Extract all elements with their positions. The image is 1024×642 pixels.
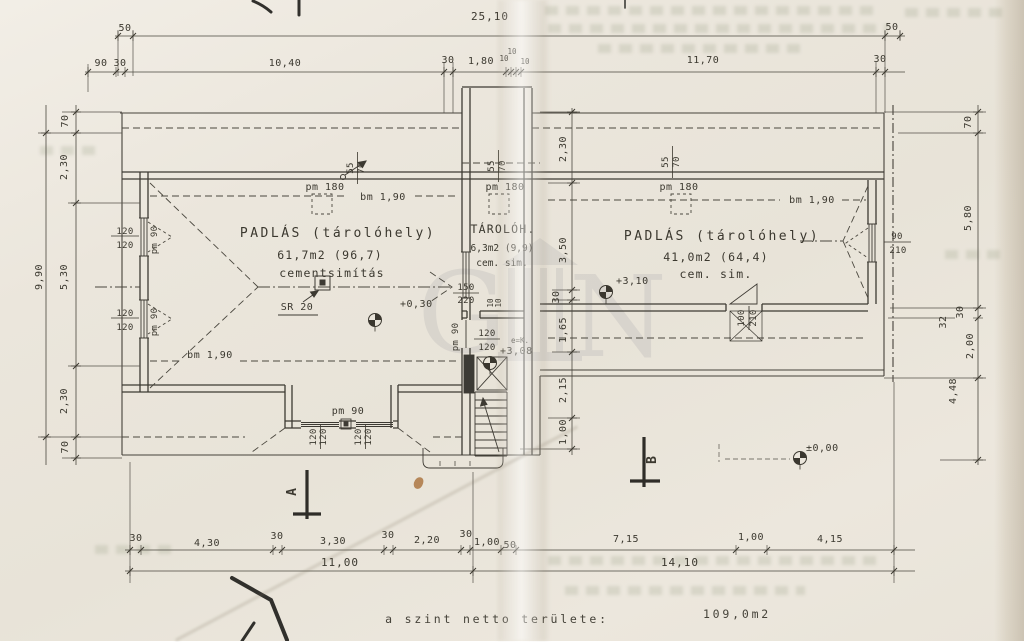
room-left-area: 61,7m2 (96,7): [277, 248, 383, 262]
dim-bottom-total-left: 11,00: [321, 556, 359, 569]
dim-left: 2,30: [59, 388, 70, 414]
room-right-area: 41,0m2 (64,4): [663, 250, 769, 264]
dim-bottom: 30: [381, 530, 394, 541]
parapet-label: pm 90: [150, 308, 160, 337]
dim-left: 2,30: [59, 154, 70, 180]
window-size: 120: [478, 329, 495, 339]
parapet-label: pm 180: [659, 182, 698, 193]
dim-mid: 2,30: [558, 136, 569, 162]
dim-right: 4,48: [948, 378, 959, 404]
stair-pier: [464, 355, 474, 393]
window-size: 120: [116, 227, 133, 237]
parapet-label: pm 90: [150, 226, 160, 255]
scanned-floor-plan-paper: G N: [0, 0, 1024, 641]
dim-bottom: 50: [503, 540, 516, 551]
rafter-size: 55: [487, 160, 497, 171]
sr20-note: SR 20: [281, 302, 314, 313]
dim-bottom: 3,30: [320, 536, 346, 547]
window-size: 120: [478, 343, 495, 353]
parapet-label: pm 180: [485, 182, 524, 193]
dim-mid: 30: [551, 290, 562, 303]
dim-top: 10,40: [269, 58, 302, 69]
level-value: +0,30: [400, 299, 433, 310]
parapet-label: pm 90: [332, 406, 365, 417]
window-size: 120: [116, 241, 133, 251]
dim-bottom: 4,15: [817, 534, 843, 545]
section-letter-b: B: [645, 456, 660, 464]
level-value: +3,08: [500, 346, 533, 357]
dim-right: 2,00: [965, 333, 976, 359]
dim-top: 30: [113, 58, 126, 69]
watermark-letter: N: [569, 253, 667, 383]
headroom-label: bm 1,90: [187, 350, 233, 361]
dim-bottom: 30: [270, 531, 283, 542]
rafter-size: 55: [661, 156, 671, 167]
dim-mid: 2,15: [558, 377, 569, 403]
window-size: 150: [457, 283, 474, 293]
dim-left: 5,30: [59, 264, 70, 290]
parapet-label: pm 180: [305, 182, 344, 193]
dim-bottom: 30: [459, 529, 472, 540]
window-size: 120: [354, 428, 364, 445]
dim-top: 90: [94, 58, 107, 69]
door-swing-triangle: [730, 284, 757, 304]
dim-top: 10: [520, 57, 530, 66]
dim-mid: 1,65: [558, 317, 569, 343]
window-size: 120: [116, 309, 133, 319]
dim-bottom: 30: [129, 533, 142, 544]
room-right-name: PADLÁS (tárolóhely): [624, 228, 820, 244]
dim-small: 10: [494, 298, 503, 308]
dim-right: 70: [963, 115, 974, 128]
dim-right: 30: [955, 305, 966, 318]
door-size: 100: [737, 309, 747, 326]
dim-top: 30: [873, 54, 886, 65]
dim-left-total: 9,90: [34, 264, 45, 290]
floor-plan-drawing: G N: [0, 0, 1024, 641]
stair-note: e=K.: [511, 336, 529, 345]
window-size: 120: [364, 428, 374, 445]
room-middle-finish: cem. sim.: [476, 258, 527, 269]
net-area-label: a szint netto területe:: [385, 612, 609, 626]
dim-top: 11,70: [687, 55, 720, 66]
dim-bottom: 4,30: [194, 538, 220, 549]
room-middle-name: TÁROLÓH.: [471, 221, 536, 236]
headroom-label: bm 1,90: [789, 195, 835, 206]
room-left-finish: cementsimítás: [279, 266, 385, 280]
level-value: +3,10: [616, 276, 649, 287]
level-value: ±0,00: [806, 443, 839, 454]
dim-left: 70: [60, 114, 71, 127]
dim-bottom: 7,15: [613, 534, 639, 545]
rafter-size: 70: [498, 160, 508, 171]
section-marks: [293, 437, 660, 519]
dim-right: 32: [938, 315, 949, 328]
rafter-size: 55: [346, 162, 356, 173]
door-size: 210: [749, 309, 759, 326]
dim-bottom: 1,00: [738, 532, 764, 543]
dim-left: 70: [60, 440, 71, 453]
window-size: 120: [309, 428, 319, 445]
rafter-size: 70: [672, 156, 682, 167]
window-size: 210: [889, 246, 906, 256]
window-size: 120: [319, 428, 329, 445]
room-middle-area: 6,3m2 (9,9): [471, 243, 534, 254]
dim-top: 10: [507, 47, 517, 56]
dim-top: 1,80: [468, 56, 494, 67]
dim-right: 5,80: [963, 205, 974, 231]
dim-mid: 1,00: [558, 419, 569, 445]
room-left-name: PADLÁS (tárolóhely): [240, 225, 436, 241]
dim-top-50-left: 50: [118, 23, 131, 34]
parapet-label: pm 90: [451, 323, 461, 352]
window-size: 120: [116, 323, 133, 333]
room-right-finish: cem. sim.: [679, 267, 752, 281]
headroom-label: bm 1,90: [360, 192, 406, 203]
dim-top: 30: [441, 55, 454, 66]
dim-bottom: 2,20: [414, 535, 440, 546]
dim-bottom: 1,00: [474, 537, 500, 548]
dim-mid: 3,50: [558, 237, 569, 263]
dim-bottom-total-right: 14,10: [661, 556, 699, 569]
section-letter-a: A: [285, 488, 300, 496]
net-area-value: 109,0m2: [703, 607, 771, 621]
rafter-size: 70: [357, 162, 367, 173]
dim-top-50-right: 50: [885, 22, 898, 33]
window-size: 90: [891, 232, 902, 242]
window-size: 220: [457, 296, 474, 306]
dim-top-overall: 25,10: [471, 10, 509, 23]
